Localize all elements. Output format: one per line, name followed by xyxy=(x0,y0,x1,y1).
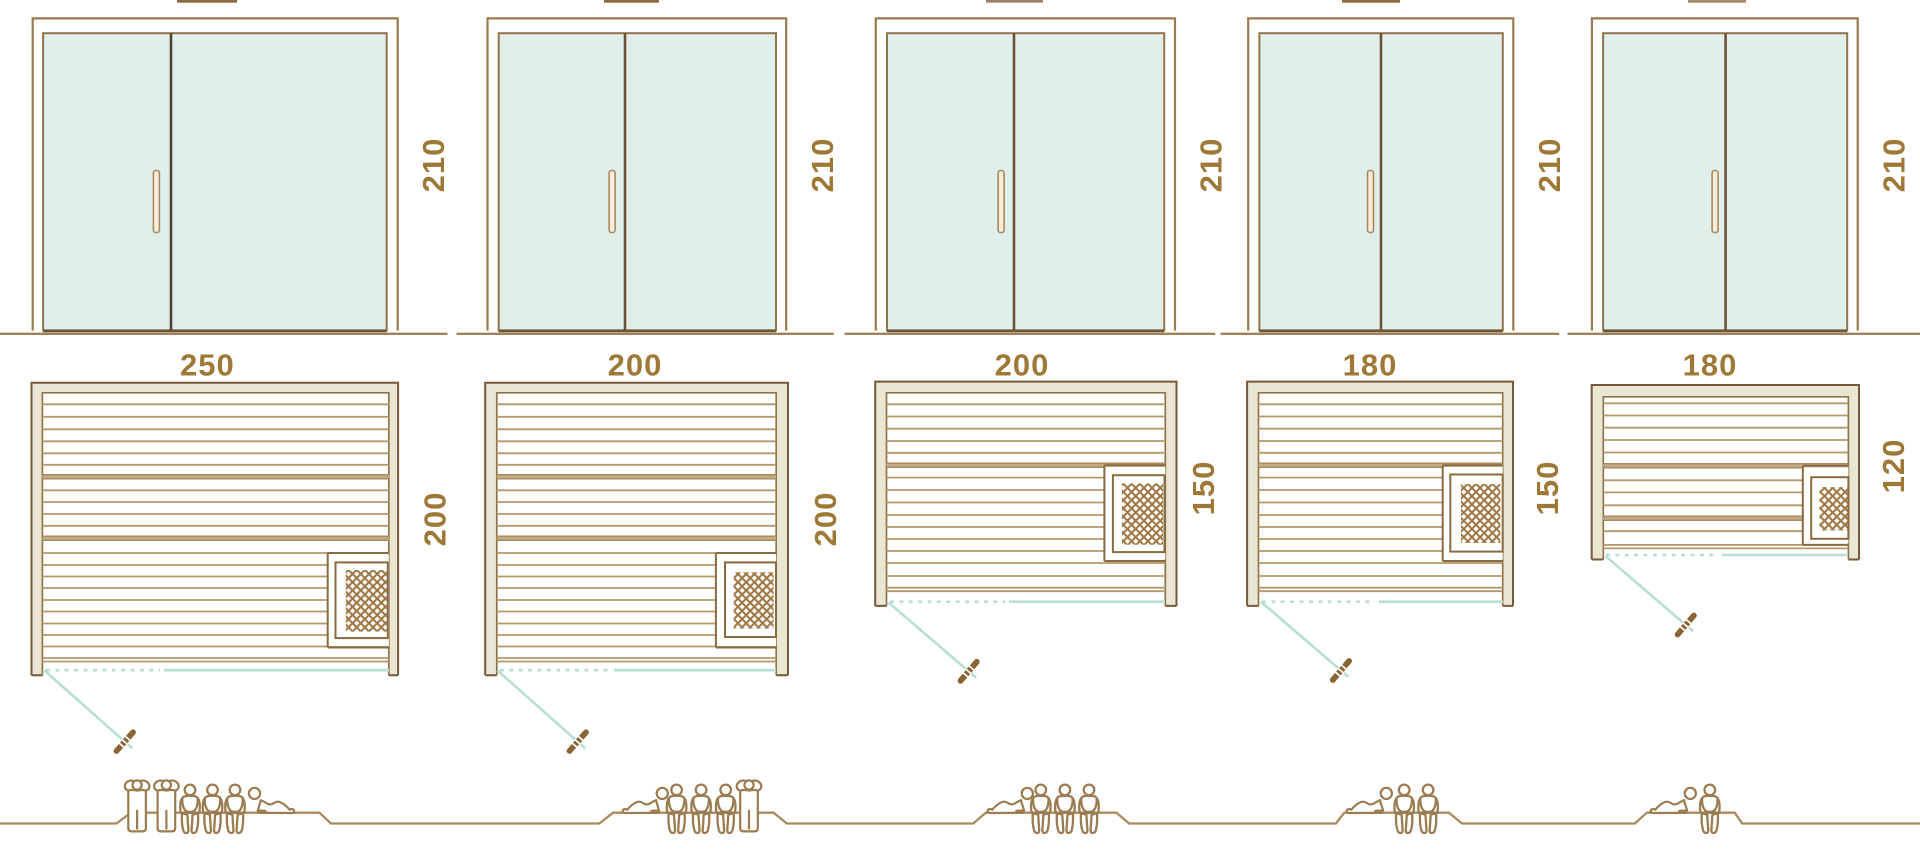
svg-text:200: 200 xyxy=(608,348,663,383)
svg-text:200: 200 xyxy=(808,492,843,547)
svg-text:210: 210 xyxy=(1876,138,1911,193)
svg-text:150: 150 xyxy=(1186,461,1221,516)
svg-text:150: 150 xyxy=(1530,461,1565,516)
svg-text:120: 120 xyxy=(1876,439,1911,494)
svg-text:250: 250 xyxy=(180,348,235,383)
svg-text:210: 210 xyxy=(1194,138,1229,193)
svg-text:210: 210 xyxy=(416,138,451,193)
svg-text:200: 200 xyxy=(995,348,1050,383)
svg-text:180: 180 xyxy=(1343,348,1398,383)
svg-text:180: 180 xyxy=(1683,348,1738,383)
svg-text:200: 200 xyxy=(418,492,453,547)
svg-text:210: 210 xyxy=(1532,138,1567,193)
svg-text:210: 210 xyxy=(805,138,840,193)
